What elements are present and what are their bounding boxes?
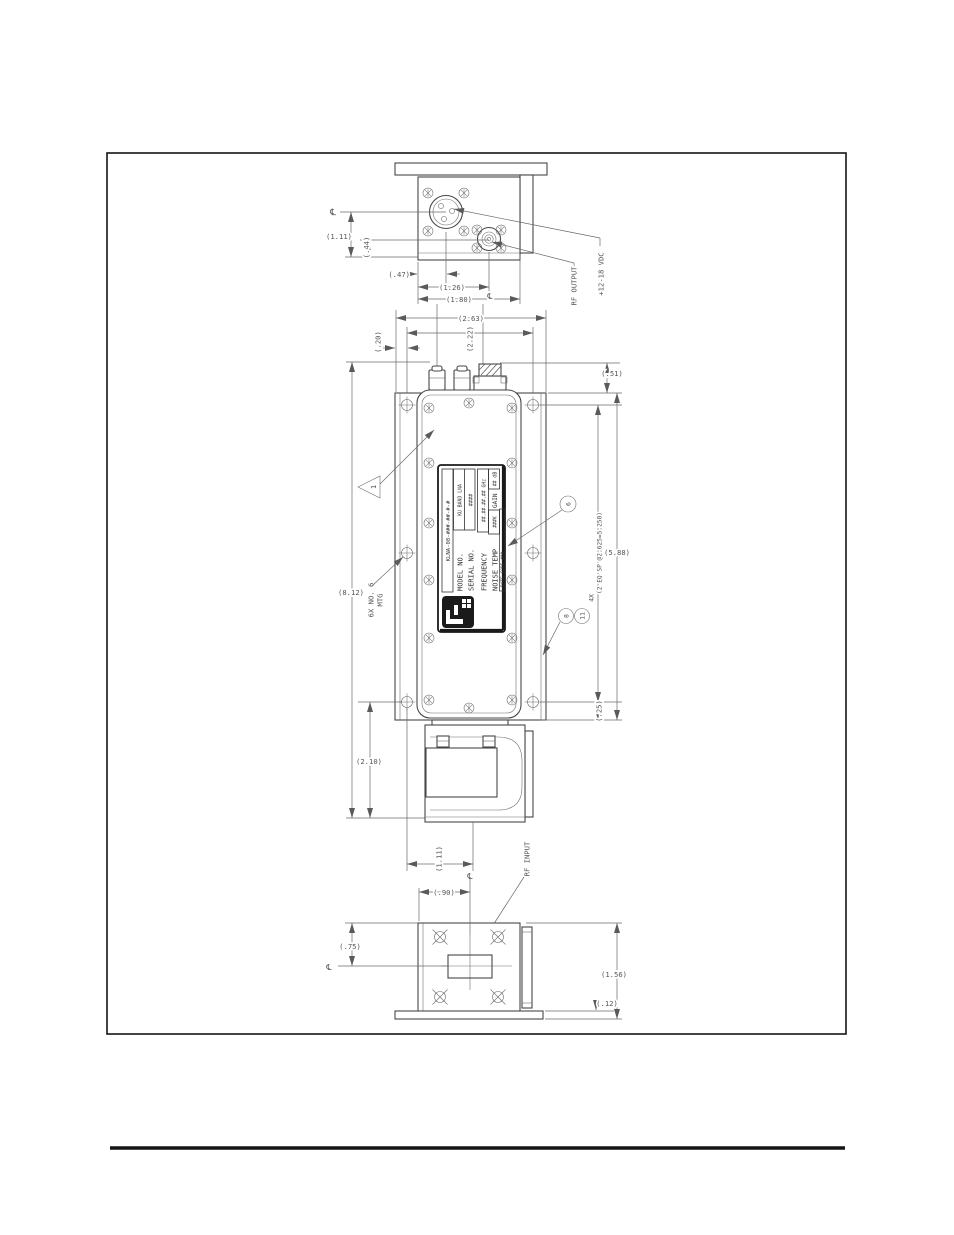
dim-aperture-x: (.90) [433, 888, 455, 897]
engineering-drawing: ℄ (1.11) (.44) (.47) (1.26) (1.80) ℄ RF … [0, 0, 954, 1235]
flange-hole-icon [433, 930, 448, 945]
mtg-note-line1: 6X NO. 6 [367, 583, 376, 618]
dim-conn-height: (.51) [601, 369, 623, 378]
dim-sma-x: (1.26) [439, 283, 465, 292]
dim-aperture-y: (.75) [339, 942, 361, 951]
manual-page: ℄ (1.11) (.44) (.47) (1.26) (1.80) ℄ RF … [0, 0, 954, 1235]
dim-bottom-margin: (.25) [595, 700, 604, 722]
side-lip [520, 175, 533, 253]
rev-number: 1 [369, 485, 378, 489]
balloon-11: 11 [578, 612, 586, 620]
dim-xlr-offset: (1.11) [326, 232, 352, 241]
dim-edge-margin: (.20) [374, 331, 383, 353]
gain-label: GAIN [492, 493, 499, 508]
base-plate [395, 1011, 543, 1019]
top-connectors [429, 364, 507, 390]
power-label: +12-18 VDC [597, 252, 606, 295]
frequency-label: FREQUENCY [481, 552, 489, 591]
dim-hole-spacing: (2 EQ SP @2.625=5.250) [596, 512, 603, 594]
input-flange [418, 923, 520, 1012]
top-view: ℄ (1.11) (.44) (.47) (1.26) (1.80) ℄ RF … [326, 163, 605, 305]
flange-hole-icon [433, 990, 448, 1005]
dim-xlr-x: (.47) [388, 270, 410, 279]
date-code: DATE CODE ### [500, 551, 506, 587]
dim-body-width: (1.80) [446, 295, 472, 304]
waveguide-window [426, 748, 497, 797]
model-value: KU BAND LNA [458, 484, 464, 516]
body-outline [418, 177, 520, 260]
rf-input-label: RF INPUT [523, 841, 532, 876]
dim-flange-height: (1.56) [601, 970, 627, 979]
dim-flange-height: (5.88) [604, 548, 630, 557]
balloon-8: 8 [562, 614, 570, 618]
model-label: MODEL NO. [457, 553, 465, 591]
rf-output-label: RF OUTPUT [570, 266, 579, 306]
waveguide-section: (2.10) (1.11) ℄ RF INPUT [356, 702, 533, 950]
nameplate: KLNA-08-###-##-#-# MODEL NO. SERIAL NO. … [438, 465, 506, 632]
serial-label: SERIAL NO. [468, 549, 476, 591]
dim-center-offset: (1.11) [435, 846, 444, 872]
mtg-note-line2: MTG [376, 594, 385, 607]
bottom-view: (.90) (.75) ℄ (1.56) (.12) [325, 878, 627, 1019]
serial-value: #### [469, 493, 475, 506]
dim-waveguide-height: (2.10) [356, 757, 382, 766]
flange-hole-icon [491, 930, 506, 945]
noise-label: NOISE TEMP [492, 549, 500, 591]
dim-hole-span: (2.22) [466, 326, 475, 352]
dim-base-thickness: (.12) [596, 999, 618, 1008]
frequency-value: ##.##-##.## GHz [482, 479, 488, 522]
balloon-qty: 4X [587, 594, 595, 602]
noise-value: ###K [493, 516, 499, 528]
centerline-symbol: ℄ [329, 208, 336, 218]
balloon-6: 6 [564, 502, 572, 506]
dim-sma-offset: (.44) [362, 237, 371, 259]
top-plate [395, 163, 547, 175]
dim-overall-height: (8.12) [338, 588, 364, 597]
dim-plate-width: (2.63) [458, 314, 484, 323]
flange-hole-icon [491, 990, 506, 1005]
part-number: KLNA-08-###-##-#-# [446, 500, 452, 561]
centerline-symbol: ℄ [325, 963, 332, 972]
gain-value: ## dB [493, 472, 499, 487]
centerline-symbol: ℄ [486, 292, 493, 301]
